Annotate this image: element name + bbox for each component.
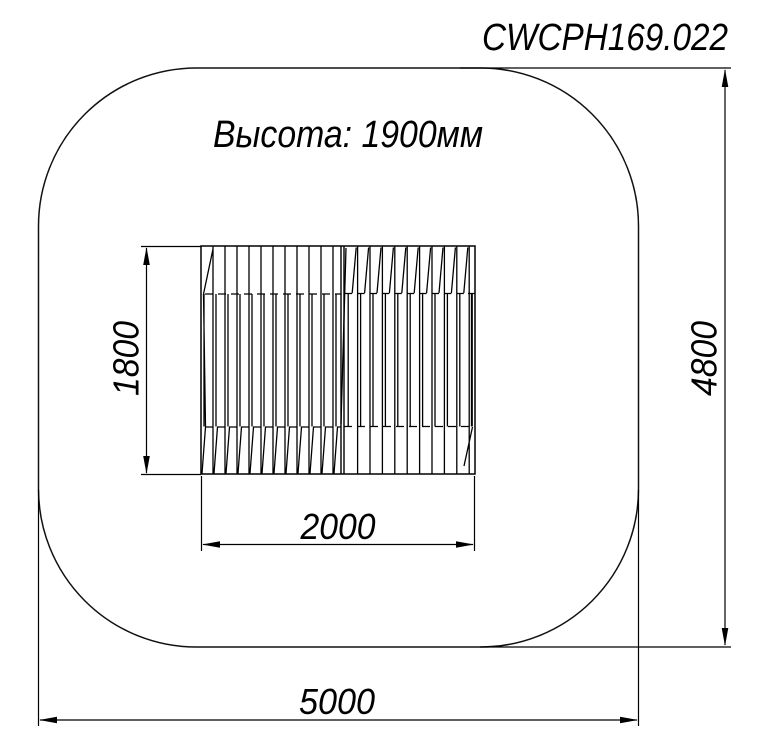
svg-text:1800: 1800 bbox=[106, 321, 147, 396]
svg-text:CWCPH169.022: CWCPH169.022 bbox=[482, 17, 728, 59]
svg-text:5000: 5000 bbox=[299, 681, 375, 722]
svg-text:4800: 4800 bbox=[684, 321, 725, 396]
svg-text:2000: 2000 bbox=[300, 506, 376, 547]
svg-text:Высота: 1900мм: Высота: 1900мм bbox=[213, 114, 483, 156]
